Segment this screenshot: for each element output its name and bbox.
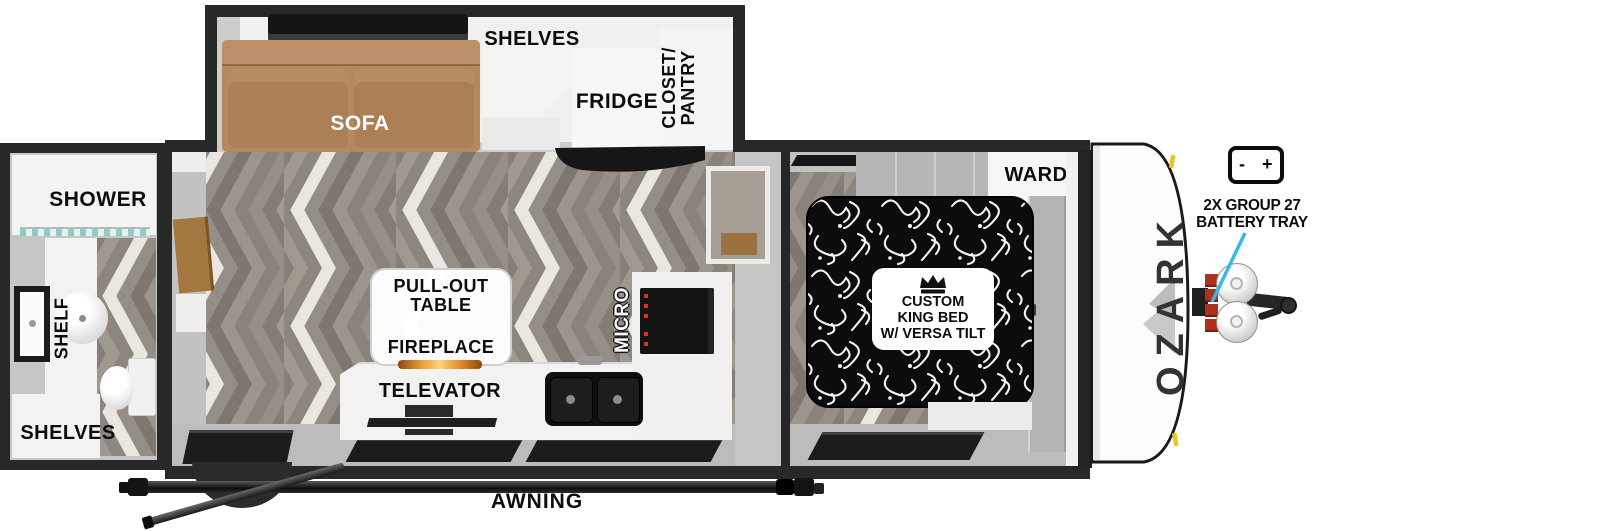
tv-lift-base <box>405 429 453 435</box>
bed-line3: W/ VERSA TILT <box>881 327 986 343</box>
slideout-window <box>268 14 468 42</box>
kitchen-window-right <box>526 438 724 462</box>
battery-minus: - <box>1239 154 1246 175</box>
tv-icon <box>405 405 453 417</box>
sofa-label: SOFA <box>290 112 430 136</box>
bed-line2: KING BED <box>881 311 986 327</box>
battery-callout-text: 2X GROUP 27 BATTERY TRAY <box>1194 197 1309 231</box>
tank-cap-bottom <box>1230 315 1243 328</box>
sofa-cushion-right <box>354 68 474 148</box>
shelf-label: SHELF <box>32 298 92 358</box>
battery-icon: - + <box>1228 146 1284 184</box>
battery-callout-line <box>1208 231 1248 305</box>
clearance-light-bottom <box>1172 433 1179 447</box>
kitchen-faucet <box>578 356 602 365</box>
awning-coupler-right <box>776 479 794 495</box>
pullout-line2: TABLE <box>372 296 510 315</box>
pullout-line1: PULL-OUT <box>372 277 510 296</box>
battery-plus: + <box>1262 154 1273 175</box>
awning-knob-left <box>119 482 129 493</box>
sink-drain-left <box>566 395 575 404</box>
bedroom-bottom-window <box>808 432 985 460</box>
main-left-wall-top <box>172 152 206 172</box>
fireplace-flame-icon <box>398 360 482 369</box>
crown-icon <box>917 273 949 295</box>
entry-door-opening <box>182 430 293 464</box>
awning-cap-right <box>794 478 814 496</box>
bathroom-door <box>173 217 214 294</box>
pullout-table-box: PULL-OUT TABLE FIREPLACE <box>370 268 512 366</box>
clearance-light-top <box>1169 155 1176 169</box>
sofa-cushion-left <box>228 68 348 148</box>
fireplace-label: FIREPLACE <box>372 337 510 358</box>
bathroom-main-divider <box>157 143 172 470</box>
televator-label: TELEVATOR <box>370 380 510 403</box>
shower-glass <box>20 227 150 236</box>
shelves-rear-label: SHELVES <box>0 422 136 445</box>
toilet-bowl <box>100 366 134 410</box>
awning-cap-left <box>128 478 148 496</box>
shower-label: SHOWER <box>28 188 168 212</box>
kitchen-sink <box>545 372 643 426</box>
awning-label: AWNING <box>462 490 612 514</box>
kitchen-corner-counter <box>550 144 710 182</box>
bed-foot-platform <box>928 402 1032 430</box>
sofa-backrest <box>222 40 480 66</box>
bathroom-door-sill <box>176 294 206 332</box>
slideout-shelves-lower <box>482 118 560 150</box>
bed-callout-box: CUSTOM KING BED W/ VERSA TILT <box>872 268 994 350</box>
floorplan-canvas: SOFA SHELVES FRIDGE CLOSET/ PANTRY <box>0 0 1600 531</box>
bed-line1: CUSTOM <box>881 295 986 311</box>
awning-knob-right <box>814 483 824 494</box>
tongue-jack-knob <box>1280 297 1297 314</box>
propane-tank-bottom <box>1216 301 1258 343</box>
grab-handle-tip <box>142 515 155 529</box>
sink-drain-right <box>613 395 622 404</box>
divider-niche <box>706 166 770 264</box>
tv-lift-bar <box>367 418 497 427</box>
niche-shelf <box>721 233 757 255</box>
micro-label: MICRO <box>593 290 653 350</box>
kitchen-window-left <box>346 438 524 462</box>
closet-pantry-label: CLOSET/ PANTRY <box>631 40 727 136</box>
bedroom-divider-edge <box>781 152 790 466</box>
